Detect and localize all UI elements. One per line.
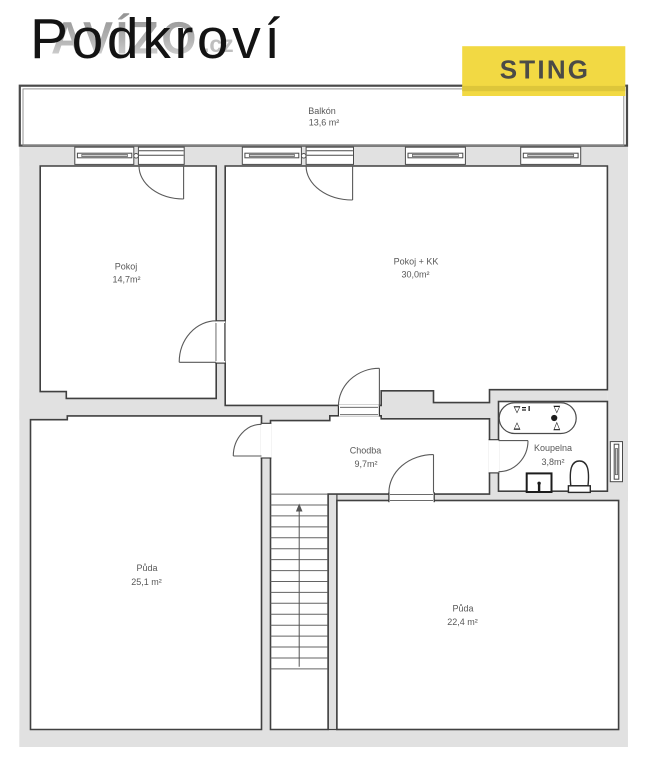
- svg-text:22,4 m²: 22,4 m²: [447, 617, 478, 627]
- svg-text:14,7m²: 14,7m²: [112, 274, 140, 284]
- svg-text:STING: STING: [500, 55, 590, 85]
- svg-text:Pokoj + KK: Pokoj + KK: [394, 257, 439, 267]
- svg-text:13,6 m²: 13,6 m²: [309, 118, 340, 128]
- svg-text:9,7m²: 9,7m²: [354, 459, 377, 469]
- svg-text:Pokoj: Pokoj: [115, 261, 138, 271]
- svg-text:Chodba: Chodba: [350, 446, 382, 456]
- svg-text:3,8m²: 3,8m²: [541, 457, 564, 467]
- svg-text:Koupelna: Koupelna: [534, 443, 572, 453]
- svg-text:25,1 m²: 25,1 m²: [131, 577, 162, 587]
- svg-text:Podkroví: Podkroví: [30, 7, 284, 71]
- svg-text:Půda: Půda: [136, 563, 157, 573]
- svg-text:Balkón: Balkón: [308, 106, 336, 116]
- svg-text:Půda: Půda: [452, 604, 473, 614]
- svg-text:30,0m²: 30,0m²: [401, 270, 429, 280]
